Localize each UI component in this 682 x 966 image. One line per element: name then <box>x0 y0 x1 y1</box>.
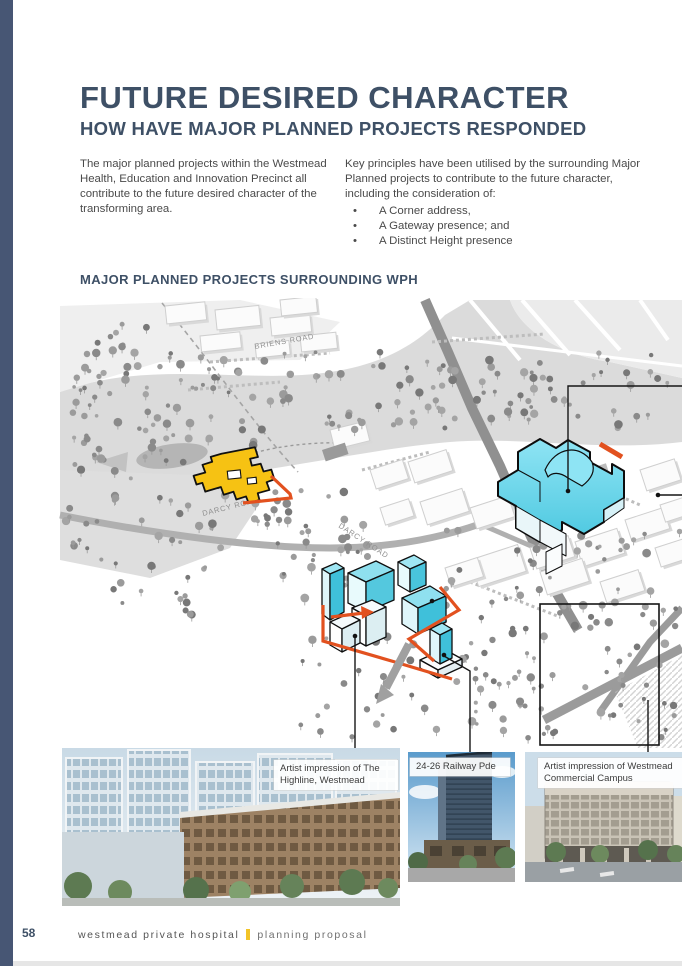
footer-text: westmead private hospitalplanning propos… <box>78 927 368 941</box>
map-section-heading: MAJOR PLANNED PROJECTS SURROUNDING WPH <box>80 272 418 287</box>
photo-caption-highline: Artist impression of The Highline, Westm… <box>274 760 398 790</box>
key-principles-list: A Corner address, A Gateway presence; an… <box>345 204 645 249</box>
page-number: 58 <box>22 926 35 940</box>
intro-right-column: Key principles have been utilised by the… <box>345 157 645 249</box>
footer-doc-section: planning proposal <box>257 929 367 941</box>
map-illustration: BRIENS ROAD DARCY ROAD DARCY ROAD <box>0 298 682 908</box>
intro-right-paragraph: Key principles have been utilised by the… <box>345 157 645 202</box>
list-item: A Distinct Height presence <box>345 234 645 249</box>
footer-divider-bar <box>246 929 250 940</box>
list-item: A Corner address, <box>345 204 645 219</box>
intro-left-paragraph: The major planned projects within the We… <box>80 157 342 217</box>
photo-caption-commercial-campus: Artist impression of Westmead Commercial… <box>538 758 682 788</box>
gateway-marker-orange-campus <box>600 444 622 457</box>
gateway-arrow-gray <box>376 644 409 704</box>
document-page: FUTURE DESIRED CHARACTER HOW HAVE MAJOR … <box>0 0 682 966</box>
photo-caption-railway-pde: 24-26 Railway Pde <box>410 758 510 776</box>
page-footer: 58 westmead private hospitalplanning pro… <box>0 920 682 950</box>
highline-buildings-cyan <box>322 555 446 652</box>
page-title: FUTURE DESIRED CHARACTER <box>80 80 569 116</box>
list-item: A Gateway presence; and <box>345 219 645 234</box>
page-bottom-edge <box>13 961 682 966</box>
footer-doc-title: westmead private hospital <box>78 929 239 941</box>
page-subtitle: HOW HAVE MAJOR PLANNED PROJECTS RESPONDE… <box>80 118 586 140</box>
